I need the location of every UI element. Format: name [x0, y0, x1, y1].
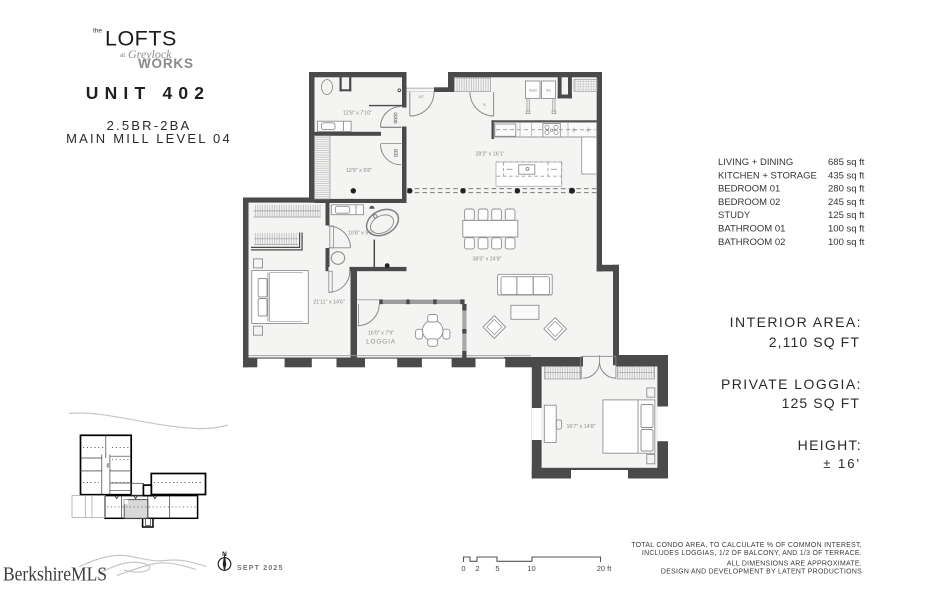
- svg-text:WORKS: WORKS: [138, 56, 194, 71]
- svg-text:at: at: [120, 53, 125, 59]
- svg-text:125 SQ FT: 125 SQ FT: [782, 395, 860, 411]
- svg-text:N: N: [222, 551, 227, 558]
- svg-text:BATHROOM 02: BATHROOM 02: [718, 237, 785, 248]
- svg-text:107: 107: [418, 95, 424, 99]
- svg-text:SEPT 2025: SEPT 2025: [237, 565, 284, 572]
- svg-text:28'2" x 16'1": 28'2" x 16'1": [475, 152, 504, 158]
- svg-text:5: 5: [495, 564, 499, 573]
- svg-text:10'8" x 9'5": 10'8" x 9'5": [348, 231, 374, 237]
- svg-text:12'8" x 7'10": 12'8" x 7'10": [343, 111, 372, 117]
- svg-text:BATHROOM 01: BATHROOM 01: [718, 224, 785, 235]
- svg-text:2,110 SQ FT: 2,110 SQ FT: [769, 334, 860, 350]
- svg-text:UNIT 402: UNIT 402: [86, 83, 211, 103]
- svg-text:100 sq ft: 100 sq ft: [828, 224, 865, 235]
- svg-text:16'0" x 7'9": 16'0" x 7'9": [368, 331, 394, 337]
- svg-text:Dry: Dry: [546, 89, 551, 93]
- svg-text:38'5" x 24'8": 38'5" x 24'8": [472, 257, 501, 263]
- svg-text:10: 10: [527, 564, 535, 573]
- svg-text:0: 0: [461, 564, 465, 573]
- svg-text:2: 2: [475, 564, 479, 573]
- svg-text:Wash: Wash: [529, 89, 537, 93]
- svg-text:20 ft: 20 ft: [597, 564, 613, 573]
- svg-text:HEIGHT:: HEIGHT:: [798, 437, 862, 453]
- svg-text:280 sq ft: 280 sq ft: [828, 184, 865, 195]
- svg-text:245 sq ft: 245 sq ft: [828, 197, 865, 208]
- svg-text:MAIN MILL LEVEL 04: MAIN MILL LEVEL 04: [66, 131, 232, 146]
- svg-text:ALL DIMENSIONS ARE APPROXIMATE: ALL DIMENSIONS ARE APPROXIMATE.: [727, 561, 862, 568]
- svg-text:INTERIOR AREA:: INTERIOR AREA:: [730, 314, 862, 330]
- svg-text:BEDROOM 02: BEDROOM 02: [718, 197, 780, 208]
- svg-text:INCLUDES LOGGIAS, 1/2 OF BALCO: INCLUDES LOGGIAS, 1/2 OF BALCONY, AND 1/…: [642, 550, 862, 557]
- svg-text:LIVING + DINING: LIVING + DINING: [718, 157, 793, 168]
- svg-text:21'11" x 14'6": 21'11" x 14'6": [313, 300, 345, 306]
- svg-text:PRIVATE LOGGIA:: PRIVATE LOGGIA:: [721, 376, 862, 392]
- svg-text:STUDY: STUDY: [718, 210, 751, 221]
- svg-text:DESIGN AND DEVELOPMENT BY LATE: DESIGN AND DEVELOPMENT BY LATENT PRODUCT…: [661, 569, 862, 576]
- svg-text:435 sq ft: 435 sq ft: [828, 170, 865, 181]
- svg-text:BerkshireMLS: BerkshireMLS: [3, 565, 107, 586]
- svg-text:BEDROOM 01: BEDROOM 01: [718, 184, 780, 195]
- svg-text:685 sq ft: 685 sq ft: [828, 157, 865, 168]
- svg-text:100 sq ft: 100 sq ft: [828, 237, 865, 248]
- svg-text:the: the: [93, 28, 102, 35]
- svg-text:± 16': ± 16': [823, 456, 861, 471]
- svg-text:TOTAL CONDO AREA, TO CALCULATE: TOTAL CONDO AREA, TO CALCULATE % OF COMM…: [631, 542, 862, 549]
- svg-text:KITCHEN + STORAGE: KITCHEN + STORAGE: [718, 170, 817, 181]
- svg-text:12'8" x 9'8": 12'8" x 9'8": [346, 168, 372, 174]
- svg-text:125 sq ft: 125 sq ft: [828, 210, 865, 221]
- svg-text:LOGGIA: LOGGIA: [366, 339, 396, 346]
- svg-text:16'7" x 14'8": 16'7" x 14'8": [566, 424, 595, 430]
